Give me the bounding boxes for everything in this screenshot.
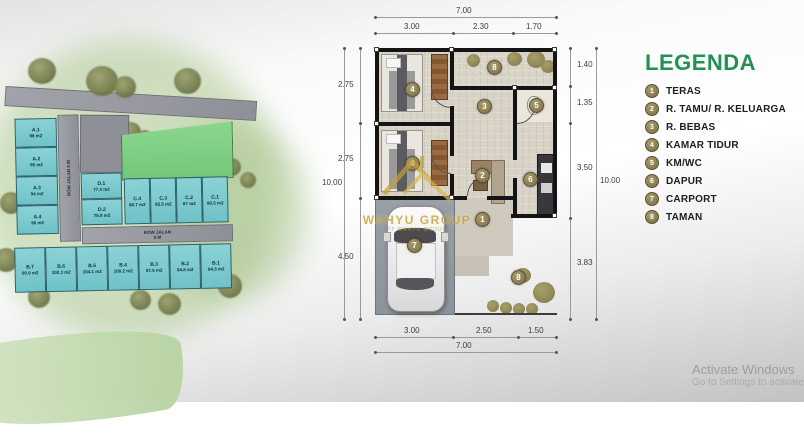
legend-item-label: TAMAN: [666, 212, 702, 223]
dim-top-seg3: 1.70: [526, 22, 542, 31]
legend-panel: LEGENDA 1 TERAS 2 R. TAMU/ R. KELUARGA 3…: [645, 50, 804, 224]
dim-right-seg1: 1.40: [577, 60, 593, 69]
dim-right-seg3: 3.50: [577, 163, 593, 172]
plot-area: 77.3 m2: [93, 186, 110, 191]
room-marker-kamar-tidur-bottom: 4: [405, 156, 420, 171]
plot-area: 100.2 m2: [114, 268, 133, 273]
dim-bottom-seg1: 3.00: [404, 326, 420, 335]
kitchen-stove: [541, 183, 552, 193]
plot-cell: B.7 90.9 m2: [14, 247, 46, 293]
plot-cell: B.5 104.1 m2: [76, 246, 108, 292]
plot-area: 85.5 m2: [155, 201, 172, 206]
dim-right-seg2: 1.35: [577, 98, 593, 107]
plot-area: 94.8 m2: [177, 267, 194, 272]
plot-area: 88.5 m2: [207, 200, 224, 205]
legend-title: LEGENDA: [645, 50, 804, 76]
plot-cell: C.3 85.5 m2: [150, 177, 177, 224]
horizontal-road: ROW JALAN 6 M: [82, 224, 233, 244]
legend-item-label: DAPUR: [666, 176, 703, 187]
dim-top-total: 7.00: [456, 6, 472, 15]
plot-cell: A.4 90 m2: [16, 205, 59, 235]
plot-cell: A.1 98 m2: [14, 118, 57, 148]
bed-pillow: [386, 58, 401, 68]
car: [387, 206, 443, 310]
plots-group: A.1 98 m2 A.2 95 m2 A.3 94 m2 A.4 90 m2 …: [0, 37, 293, 343]
dim-left-seg2: 2.75: [338, 154, 354, 163]
page: A.1 98 m2 A.2 95 m2 A.3 94 m2 A.4 90 m2 …: [0, 0, 804, 402]
plot-cell: A.2 95 m2: [15, 147, 58, 177]
legend-item-label: KAMAR TIDUR: [666, 140, 739, 151]
legend-item: 8 TAMAN: [645, 210, 804, 224]
legend-item: 7 CARPORT: [645, 192, 804, 206]
dim-left-total: 10.00: [322, 178, 342, 187]
column-marker: [449, 195, 454, 200]
column-marker: [374, 121, 379, 126]
room-marker-taman-bottom: 8: [511, 270, 526, 285]
kitchen-sink: [541, 163, 552, 173]
column-marker: [374, 47, 379, 52]
room-marker-kamar-tidur-top: 4: [405, 82, 420, 97]
legend-item-label: CARPORT: [666, 194, 717, 205]
car-rear-window: [396, 278, 434, 290]
bush-icon: [507, 52, 522, 66]
plot-cell: B.3 87.6 m2: [138, 245, 170, 291]
bed-pillow: [386, 134, 401, 144]
windows-activation-notice: Activate Windows Go to Settings to activ…: [692, 362, 804, 388]
legend-number-badge: 7: [645, 192, 659, 206]
plot-cell: D.2 75.9 m2: [81, 198, 123, 225]
legend-number-badge: 2: [645, 102, 659, 116]
dim-bottom-total: 7.00: [456, 341, 472, 350]
plot-area: 94 m2: [31, 191, 44, 196]
plot-cell: B.4 100.2 m2: [107, 245, 139, 291]
plot-cell: C.2 87 m2: [176, 177, 203, 224]
plot-cell: B.6 102.3 m2: [45, 246, 77, 292]
room-marker-teras: 1: [475, 212, 490, 227]
dim-bottom-seg2: 2.50: [476, 326, 492, 335]
dim-top-seg2: 2.30: [473, 22, 489, 31]
room-marker-r-bebas: 3: [477, 99, 492, 114]
room-marker-carport: 7: [407, 238, 422, 253]
legend-item-label: KM/WC: [666, 158, 702, 169]
plot-area: 90 m2: [31, 220, 44, 225]
dim-right-total: 10.00: [600, 176, 620, 185]
plot-area: 87 m2: [183, 200, 196, 205]
legend-item: 4 KAMAR TIDUR: [645, 138, 804, 152]
vertical-road-label: ROW JALAN 6 M: [66, 160, 72, 196]
plot-cell: C.1 88.5 m2: [202, 176, 229, 223]
horizontal-road-label: ROW JALAN 6 M: [144, 229, 171, 240]
terrace-walkway: [455, 256, 489, 276]
column-marker: [374, 195, 379, 200]
column-marker: [449, 47, 454, 52]
room-marker-r-tamu: 2: [475, 168, 490, 183]
plot-cell: D.1 77.3 m2: [81, 172, 123, 199]
plot-cell: C.4 86.7 m2: [124, 178, 151, 225]
legend-number-badge: 4: [645, 138, 659, 152]
column-marker: [552, 213, 557, 218]
terrace-floor: [455, 198, 513, 256]
legend-item-label: R. BEBAS: [666, 122, 715, 133]
plot-cell: B.2 94.8 m2: [169, 244, 201, 290]
bush-icon: [487, 300, 499, 312]
legend-item: 1 TERAS: [645, 84, 804, 98]
legend-item: 2 R. TAMU/ R. KELUARGA: [645, 102, 804, 116]
legend-item-label: TERAS: [666, 86, 701, 97]
legend-number-badge: 5: [645, 156, 659, 170]
floor-plan: 8 4 3 5 4 2 6 1 7 8: [375, 48, 557, 320]
plot-area: 87.6 m2: [146, 268, 163, 273]
plot-area: 104.1 m2: [83, 269, 102, 274]
green-area: [121, 120, 234, 180]
legend-number-badge: 3: [645, 120, 659, 134]
activate-windows-subtext: Go to Settings to activate: [692, 377, 804, 388]
dim-top-seg1: 3.00: [404, 22, 420, 31]
dim-bottom-seg3: 1.50: [528, 326, 544, 335]
car-mirror-right: [441, 232, 449, 242]
plot-area: 95 m2: [30, 162, 43, 167]
legend-number-badge: 1: [645, 84, 659, 98]
room-marker-taman-top: 8: [487, 60, 502, 75]
column-marker: [552, 47, 557, 52]
vertical-road: ROW JALAN 6 M: [57, 114, 81, 241]
legend-item: 6 DAPUR: [645, 174, 804, 188]
plot-cell: A.3 94 m2: [16, 176, 59, 206]
site-plan: A.1 98 m2 A.2 95 m2 A.3 94 m2 A.4 90 m2 …: [0, 40, 290, 340]
plot-area: 75.9 m2: [94, 212, 111, 217]
dim-left-seg1: 2.75: [338, 80, 354, 89]
room-marker-dapur: 6: [523, 172, 538, 187]
car-mirror-left: [383, 232, 391, 242]
dim-right-seg4: 3.83: [577, 258, 593, 267]
plot-area: 90.9 m2: [22, 270, 39, 275]
plot-area: 94.3 m2: [208, 266, 225, 271]
bush-icon: [533, 282, 555, 303]
legend-number-badge: 6: [645, 174, 659, 188]
legend-item-label: R. TAMU/ R. KELUARGA: [666, 104, 786, 115]
dim-left-seg3: 4.50: [338, 252, 354, 261]
plot-area: 102.3 m2: [52, 270, 71, 275]
bush-icon: [467, 54, 480, 67]
activate-windows-text: Activate Windows: [692, 362, 804, 377]
room-marker-kmwc: 5: [529, 98, 544, 113]
column-marker: [552, 85, 557, 90]
column-marker: [512, 85, 517, 90]
plot-area: 86.7 m2: [129, 201, 146, 206]
legend-item: 3 R. BEBAS: [645, 120, 804, 134]
plot-area: 98 m2: [29, 133, 42, 138]
plot-cell: B.1 94.3 m2: [200, 243, 232, 289]
legend-number-badge: 8: [645, 210, 659, 224]
legend-item: 5 KM/WC: [645, 156, 804, 170]
